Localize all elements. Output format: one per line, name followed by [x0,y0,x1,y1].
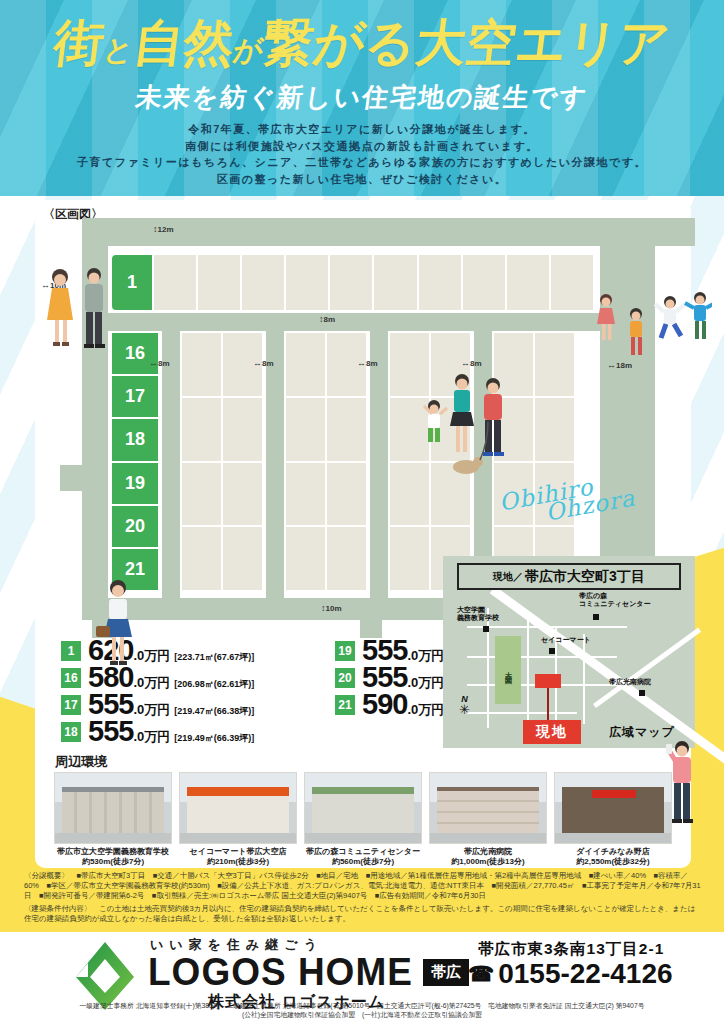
dim-bottom: ↕10m [321,603,342,613]
surroundings-photos: 帯広市立大空学園義務教育学校約530m(徒歩7分)セイコーマート帯広大空店約21… [54,772,674,866]
dim-top: ↕12m [153,224,174,234]
plan-road-stub [130,222,154,236]
plan-lot [223,398,262,461]
brand-name: LOGOS HOME [148,950,413,994]
plan-lot-18: 18 [112,419,158,460]
surroundings-distance: 約2,550m(徒歩32分) [554,857,672,866]
lot-area: [219.49㎡(66.39坪)] [174,732,254,745]
lot-area: [223.71㎡(67.67坪)] [174,651,254,664]
surroundings-name: 帯広市立大空学園義務教育学校 [54,847,172,857]
surroundings-photo [304,772,422,844]
map-marker-hospital [639,690,645,696]
title-segment: と [102,34,136,66]
map-site-badge: 現地 [523,720,581,744]
lot-number-badge: 20 [335,668,355,688]
subtitle: 未来を紡ぐ新しい住宅地の誕生です [0,80,724,115]
compass-icon: N ✳ [459,694,470,716]
price-unit: .0万円 [407,674,444,692]
illustration-schoolgirl [82,578,152,672]
dim-col2: ↔8m [253,358,274,368]
lot-number-badge: 17 [61,695,81,715]
plan-road-column [370,331,388,598]
surroundings-photo [54,772,172,844]
dim-col4: ↔8m [461,358,482,368]
plan-road-mid [108,313,600,331]
description-line: 子育てファミリーはもちろん、シニア、二世帯などあらゆる家族の方におすすめしたい分… [0,154,724,171]
price-row-lot-17: 17555.0万円[219.47㎡(66.38坪)] [61,694,254,715]
surroundings-card: 帯広光南病院約1,000m(徒歩13分) [429,772,547,866]
map-road [583,634,585,724]
surroundings-label: 周辺環境 [55,753,107,771]
plan-lot [330,255,372,310]
price-amount: 555 [88,694,133,714]
price-amount: 555 [88,721,133,741]
surroundings-name: 帯広の森コミュニティセンター [304,847,422,857]
map-label-school: 大空学園義務教育学校 [457,606,499,622]
dim-col3: ↔8m [357,358,378,368]
plan-lot [182,333,221,396]
plan-lot [327,527,366,590]
surroundings-distance: 約1,000m(徒歩13分) [429,857,547,866]
plan-lot [463,255,505,310]
plan-lot [286,398,325,461]
lot-number-badge: 18 [61,722,81,742]
surroundings-photo [179,772,297,844]
lot-area: [206.98㎡(62.61坪)] [174,678,254,691]
title-segment: が [231,34,265,66]
price-unit: .0万円 [133,728,170,746]
lot-number-badge: 16 [61,668,81,688]
plan-lot [223,527,262,590]
surroundings-distance: 約210m(徒歩3分) [179,857,297,866]
title-segment: 街 [51,15,108,71]
footer: いい家を住み継ごう LOGOS HOME 帯広 株式会社 ロゴスホーム 帯広市東… [0,932,724,1024]
surroundings-card: 帯広市立大空学園義務教育学校約530m(徒歩7分) [54,772,172,866]
plan-road-stub [606,222,630,236]
dim-col1: ↔8m [149,358,170,368]
surroundings-card: 帯広の森コミュニティセンター約560m(徒歩7分) [304,772,422,866]
plan-lot [535,333,574,396]
flyer-page: 街と自然が繋がる大空エリア 未来を紡ぐ新しい住宅地の誕生です 令和7年夏、帯広市… [0,0,724,1024]
price-unit: .0万円 [133,701,170,719]
lot-area: [219.47㎡(66.38坪)] [174,705,254,718]
phone-number: ☎ 0155-22-4126 [468,958,673,990]
illustration-couple [22,266,142,362]
surroundings-card: セイコーマート帯広大空店約210m(徒歩3分) [179,772,297,866]
plan-lot [154,255,196,310]
surroundings-photo [429,772,547,844]
plan-lot [182,463,221,526]
fine-print: 〈分譲概要〉 ■帯広市大空町3丁目 ■交通／十勝バス「大空3丁目」バス停徒歩2分… [24,871,702,924]
plan-lot-row-top: 1 [112,255,593,310]
plan-road-column [266,331,284,598]
plan-lot-20: 20 [112,506,158,547]
plan-lot [198,255,240,310]
location-map-panel: 現地／ 帯広市大空町3丁目 大空公園 大空学園義務教育学校 帯広の森コミュニティ… [443,556,695,748]
plan-lot [374,255,416,310]
description-line: 南側には利便施設やバス交通拠点の新設も計画されています。 [0,138,724,155]
plan-green-lot-stack: 161718192021 [112,333,158,590]
map-site-marker [535,674,561,688]
company-address: 帯広市東3条南13丁目2-1 [478,939,664,960]
plan-lot [419,255,461,310]
plan-road-top [82,218,695,246]
plan-lot-17: 17 [112,376,158,417]
plan-road-stub [370,222,394,236]
map-label-seicomart: セイコーマート [541,636,591,644]
map-road [467,712,577,714]
plan-lot-block [182,333,262,590]
surroundings-name: ダイイチみなみ野店 [554,847,672,857]
plan-road-stub [246,222,270,236]
price-unit: .0万円 [407,647,444,665]
plan-lot [182,527,221,590]
plan-lot [551,255,593,310]
title-segment: 繋がる [260,15,419,71]
plan-lot [535,398,574,461]
illustration-family-dog [418,372,518,484]
map-marker-seicomart [549,648,555,654]
description-text: 令和7年夏、帯広市大空エリアに新しい分譲地が誕生します。南側には利便施設やバス交… [0,121,724,187]
phone-icon: ☎ [468,962,494,986]
plan-lot [286,527,325,590]
map-road [527,616,529,734]
surroundings-name: セイコーマート帯広大空店 [179,847,297,857]
map-marker-community [593,614,599,620]
plan-lot [286,463,325,526]
price-unit: .0万円 [407,701,444,719]
plan-road-stub [486,222,510,236]
illustration-children-jumping [592,288,712,404]
map-label-hospital: 帯広光南病院 [609,678,651,686]
sales-outline-text: 〈分譲概要〉 ■帯広市大空町3丁目 ■交通／十勝バス「大空3丁目」バス停徒歩2分… [24,871,702,901]
plan-lot [507,255,549,310]
price-amount: 590 [362,694,407,714]
dim-mid: ↕8m [319,314,335,324]
branch-badge: 帯広 [423,959,469,986]
plan-lot [286,333,325,396]
surroundings-distance: 約560m(徒歩7分) [304,857,422,866]
map-road [467,656,617,658]
plan-road-stub [60,465,82,491]
plan-lot [286,255,328,310]
map-label-community: 帯広の森コミュニティセンター [579,592,650,608]
map-road [467,626,627,628]
location-map-title: 現地／ 帯広市大空町3丁目 [457,563,681,590]
registration-lines: 一級建築士事務所 北海道知事登録(十)第385号 二級建築士事務所 北海道知事登… [0,1002,724,1019]
surroundings-distance: 約530m(徒歩7分) [54,857,172,866]
plan-lot [223,463,262,526]
plan-lot [242,255,284,310]
description-line: 区画の整った新しい住宅地、ぜひご検討ください。 [0,171,724,188]
lot-number-badge: 21 [335,695,355,715]
surroundings-name: 帯広光南病院 [429,847,547,857]
plan-road-column [162,331,180,598]
plan-lot-19: 19 [112,463,158,504]
plan-lot [327,463,366,526]
lot-number-badge: 19 [335,641,355,661]
hero-header: 街と自然が繋がる大空エリア 未来を紡ぐ新しい住宅地の誕生です 令和7年夏、帯広市… [0,0,724,196]
main-title: 街と自然が繋がる大空エリア [0,10,724,77]
lot-number-badge: 1 [61,641,81,661]
plan-lot [182,398,221,461]
title-segment: 自然 [131,15,238,71]
plan-lot [390,527,429,590]
plan-lot-block [286,333,366,590]
map-site-pointer [547,688,549,722]
map-marker-school [483,626,489,632]
price-amount: 555 [362,640,407,660]
price-unit: .0万円 [133,674,170,692]
description-line: 令和7年夏、帯広市大空エリアに新しい分譲地が誕生します。 [0,121,724,138]
plan-lot [327,398,366,461]
price-row-lot-18: 18555.0万円[219.49㎡(66.39坪)] [61,721,254,742]
map-park-area: 大空公園 [495,636,521,704]
building-conditions-text: 〈建築条件付内容〉 この土地は土地売買契約後3カ月以内に、住宅の建築請負契約を締… [24,904,702,924]
title-segment: 大空エリア [413,15,673,71]
illustration-person-phone [652,738,712,838]
price-amount: 555 [362,667,407,687]
